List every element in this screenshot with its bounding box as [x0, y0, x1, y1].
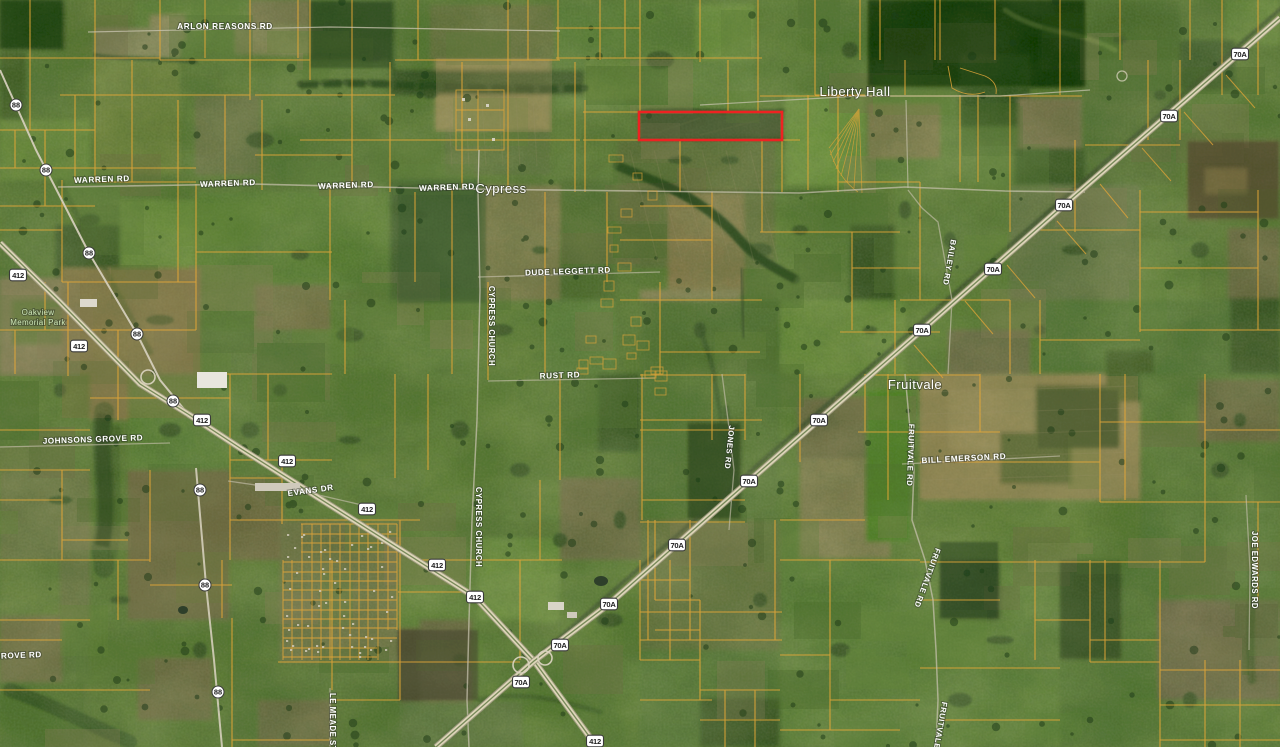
svg-text:70A: 70A	[553, 641, 567, 650]
svg-text:70A: 70A	[915, 326, 929, 335]
svg-text:70A: 70A	[514, 678, 528, 687]
svg-text:70A: 70A	[1233, 50, 1247, 59]
svg-text:70A: 70A	[1162, 112, 1176, 121]
svg-text:Memorial Park: Memorial Park	[10, 318, 66, 327]
svg-text:Cypress: Cypress	[475, 181, 526, 196]
svg-text:70A: 70A	[1057, 201, 1071, 210]
svg-text:88: 88	[85, 249, 93, 258]
svg-text:412: 412	[431, 561, 443, 570]
svg-text:Liberty Hall: Liberty Hall	[819, 84, 890, 99]
svg-text:88: 88	[169, 397, 177, 406]
svg-text:412: 412	[73, 342, 85, 351]
svg-text:Fruitvale: Fruitvale	[888, 377, 942, 392]
svg-text:88: 88	[214, 688, 222, 697]
svg-text:412: 412	[281, 457, 293, 466]
svg-text:88: 88	[42, 166, 50, 175]
svg-text:412: 412	[12, 271, 24, 280]
svg-text:70A: 70A	[602, 600, 616, 609]
svg-text:88: 88	[12, 101, 20, 110]
svg-text:70A: 70A	[742, 477, 756, 486]
svg-text:412: 412	[196, 416, 208, 425]
svg-text:412: 412	[469, 593, 481, 602]
svg-text:ARLON REASONS RD: ARLON REASONS RD	[177, 22, 273, 31]
svg-text:GROVE RD: GROVE RD	[0, 650, 42, 661]
svg-text:RUST RD: RUST RD	[539, 370, 580, 380]
svg-text:70A: 70A	[986, 265, 1000, 274]
svg-text:Oakview: Oakview	[22, 308, 55, 317]
svg-text:70A: 70A	[812, 416, 826, 425]
svg-text:70A: 70A	[670, 541, 684, 550]
svg-text:CYPRESS CHURCH: CYPRESS CHURCH	[487, 286, 496, 366]
svg-text:412: 412	[589, 737, 601, 746]
svg-text:88: 88	[201, 581, 209, 590]
svg-text:LE MEADE ST: LE MEADE ST	[328, 693, 337, 747]
svg-text:88: 88	[133, 330, 141, 339]
svg-text:CYPRESS CHURCH: CYPRESS CHURCH	[474, 487, 483, 567]
svg-text:412: 412	[361, 505, 373, 514]
svg-text:JOE EDWARDS RD: JOE EDWARDS RD	[1250, 531, 1259, 609]
svg-text:88: 88	[196, 486, 204, 495]
